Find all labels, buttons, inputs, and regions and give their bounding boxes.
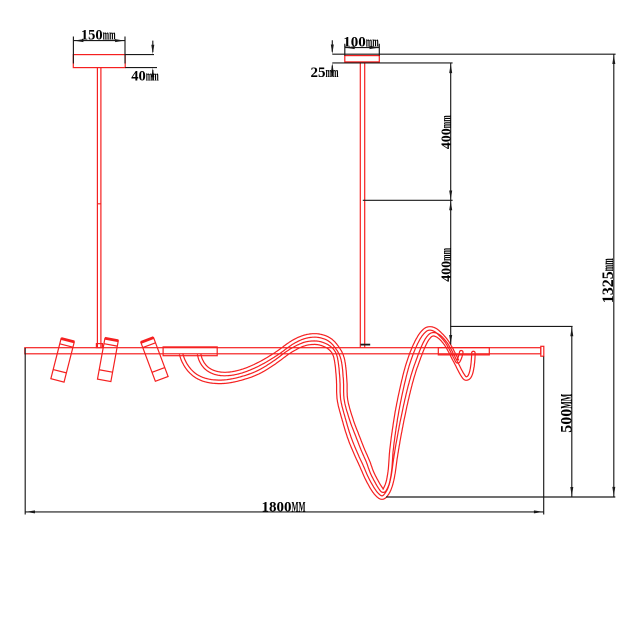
svg-text:150mm: 150mm	[81, 28, 116, 44]
svg-text:40mm: 40mm	[131, 69, 159, 85]
svg-text:25mm: 25mm	[311, 65, 339, 81]
svg-text:1325mm: 1325mm	[600, 258, 617, 303]
svg-text:100mm: 100mm	[343, 35, 379, 51]
svg-text:400mm: 400mm	[440, 115, 455, 149]
svg-text:400mm: 400mm	[440, 248, 455, 282]
svg-text:1800MM: 1800MM	[262, 499, 306, 515]
svg-text:500MM: 500MM	[558, 394, 575, 433]
